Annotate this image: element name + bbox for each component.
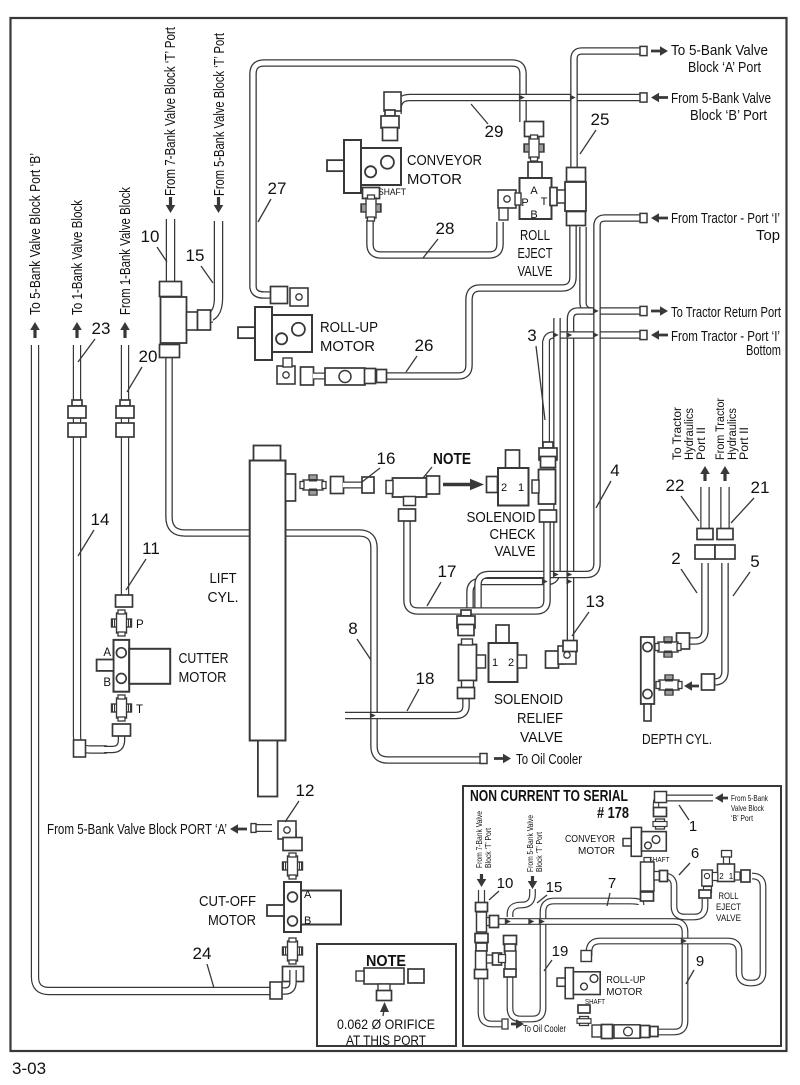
svg-text:NOTE: NOTE	[433, 451, 471, 468]
svg-text:17: 17	[438, 562, 457, 581]
svg-text:Block ‘T’ Port: Block ‘T’ Port	[534, 831, 544, 872]
svg-text:EJECT: EJECT	[518, 245, 553, 262]
svg-text:6: 6	[691, 845, 699, 862]
svg-text:From 5-Bank Valve: From 5-Bank Valve	[671, 91, 771, 107]
svg-text:SOLENOID: SOLENOID	[494, 691, 563, 708]
svg-text:4: 4	[610, 461, 619, 480]
svg-text:CUTTER: CUTTER	[179, 650, 229, 667]
svg-text:26: 26	[415, 336, 434, 355]
svg-text:From 1-Bank Valve Block: From 1-Bank Valve Block	[118, 186, 134, 315]
svg-text:29: 29	[485, 122, 504, 141]
svg-text:25: 25	[591, 110, 610, 129]
svg-text:2: 2	[508, 657, 514, 669]
svg-text:Port II: Port II	[696, 427, 708, 460]
svg-text:P: P	[521, 197, 528, 209]
svg-text:Port II: Port II	[739, 427, 751, 460]
svg-text:ROLL-UP: ROLL-UP	[606, 975, 645, 986]
svg-text:Block ‘A’ Port: Block ‘A’ Port	[688, 60, 761, 76]
svg-text:To 5-Bank Valve: To 5-Bank Valve	[671, 43, 768, 59]
svg-text:VALVE: VALVE	[518, 263, 553, 280]
svg-text:27: 27	[268, 179, 287, 198]
svg-text:2: 2	[719, 872, 724, 881]
svg-text:SOLENOID: SOLENOID	[467, 509, 536, 526]
svg-text:A: A	[530, 185, 538, 197]
svg-text:0.062 Ø ORIFICE: 0.062 Ø ORIFICE	[337, 1016, 435, 1032]
svg-text:1: 1	[729, 872, 734, 881]
svg-text:To Tractor Return Port: To Tractor Return Port	[671, 305, 781, 321]
svg-text:18: 18	[416, 669, 435, 688]
svg-text:MOTOR: MOTOR	[208, 912, 256, 929]
svg-text:5: 5	[750, 552, 759, 571]
svg-text:28: 28	[436, 219, 455, 238]
svg-text:VALVE: VALVE	[495, 543, 536, 560]
svg-text:B: B	[530, 209, 537, 221]
svg-text:To 5-Bank Valve Block Port ‘B’: To 5-Bank Valve Block Port ‘B’	[28, 153, 44, 315]
svg-text:2: 2	[501, 482, 507, 494]
svg-text:MOTOR: MOTOR	[407, 171, 462, 188]
svg-text:T: T	[541, 196, 548, 208]
svg-text:7: 7	[608, 875, 616, 892]
svg-text:MOTOR: MOTOR	[606, 987, 642, 998]
svg-text:Bottom: Bottom	[746, 343, 781, 359]
svg-text:P: P	[136, 619, 144, 631]
svg-text:ROLL-UP: ROLL-UP	[320, 319, 378, 336]
svg-text:RELIEF: RELIEF	[517, 710, 563, 727]
svg-text:VALVE: VALVE	[520, 729, 563, 746]
svg-text:13: 13	[586, 592, 605, 611]
svg-text:A: A	[304, 889, 312, 901]
svg-text:Hydraulics: Hydraulics	[727, 408, 739, 460]
svg-text:From 5-Bank: From 5-Bank	[731, 793, 769, 803]
svg-text:CYL.: CYL.	[208, 589, 239, 606]
svg-text:20: 20	[139, 347, 158, 366]
svg-text:23: 23	[92, 319, 111, 338]
svg-text:24: 24	[193, 944, 212, 963]
svg-text:A: A	[103, 647, 111, 659]
svg-text:21: 21	[751, 478, 770, 497]
svg-text:8: 8	[348, 619, 357, 638]
svg-text:# 178: # 178	[597, 805, 629, 822]
svg-text:T: T	[136, 704, 143, 716]
svg-text:3-03: 3-03	[12, 1059, 46, 1078]
svg-text:ROLL: ROLL	[520, 227, 550, 244]
svg-text:CONVEYOR: CONVEYOR	[407, 152, 482, 169]
svg-text:B: B	[304, 915, 311, 927]
svg-text:2: 2	[671, 549, 680, 568]
svg-text:Hydraulics: Hydraulics	[684, 408, 696, 460]
svg-text:To Oil Cooler: To Oil Cooler	[523, 1024, 566, 1035]
svg-text:19: 19	[552, 943, 569, 960]
svg-text:From 5-Bank Valve Block ‘T’ Po: From 5-Bank Valve Block ‘T’ Port	[212, 33, 228, 196]
svg-text:1: 1	[689, 818, 697, 835]
svg-text:1: 1	[492, 657, 498, 669]
svg-text:15: 15	[546, 879, 563, 896]
svg-text:14: 14	[91, 510, 110, 529]
svg-text:To Tractor: To Tractor	[672, 407, 684, 460]
svg-text:MOTOR: MOTOR	[320, 338, 375, 355]
svg-text:Top: Top	[756, 228, 780, 244]
svg-text:From Tractor - Port ‘I’: From Tractor - Port ‘I’	[671, 211, 780, 227]
svg-text:B: B	[103, 677, 111, 689]
svg-text:VALVE: VALVE	[716, 913, 741, 924]
svg-text:MOTOR: MOTOR	[179, 669, 227, 686]
svg-text:Block ‘T’ Port: Block ‘T’ Port	[483, 827, 493, 868]
svg-text:3: 3	[527, 326, 536, 345]
svg-text:10: 10	[497, 875, 514, 892]
svg-text:To 1-Bank Valve Block: To 1-Bank Valve Block	[70, 199, 86, 315]
svg-text:CUT-OFF: CUT-OFF	[199, 893, 256, 910]
svg-text:NON CURRENT TO SERIAL: NON CURRENT TO SERIAL	[470, 788, 628, 805]
svg-text:To Oil Cooler: To Oil Cooler	[516, 752, 582, 768]
svg-text:From Tractor: From Tractor	[715, 398, 727, 460]
svg-text:10: 10	[141, 227, 160, 246]
svg-text:From 7-Bank Valve Block ‘T’ Po: From 7-Bank Valve Block ‘T’ Port	[163, 27, 179, 196]
svg-text:LIFT: LIFT	[210, 570, 237, 587]
svg-text:‘B’ Port: ‘B’ Port	[731, 813, 754, 823]
svg-text:SHAFT: SHAFT	[378, 187, 406, 197]
svg-text:16: 16	[377, 449, 396, 468]
svg-text:9: 9	[696, 953, 704, 970]
svg-text:ROLL: ROLL	[719, 891, 739, 902]
svg-text:From 5-Bank Valve Block PORT ‘: From 5-Bank Valve Block PORT ‘A’	[47, 822, 227, 838]
svg-text:1: 1	[518, 482, 524, 494]
svg-text:12: 12	[296, 781, 315, 800]
svg-text:22: 22	[666, 476, 685, 495]
svg-text:CHECK: CHECK	[490, 526, 536, 543]
svg-text:15: 15	[186, 246, 205, 265]
svg-text:DEPTH CYL.: DEPTH CYL.	[642, 731, 712, 748]
svg-text:CONVEYOR: CONVEYOR	[565, 834, 615, 845]
svg-text:EJECT: EJECT	[716, 902, 741, 913]
svg-text:Valve Block: Valve Block	[731, 803, 765, 813]
svg-text:Block ‘B’ Port: Block ‘B’ Port	[690, 108, 767, 124]
svg-text:11: 11	[142, 539, 160, 558]
svg-text:AT THIS PORT: AT THIS PORT	[346, 1032, 426, 1048]
svg-text:MOTOR: MOTOR	[578, 846, 615, 857]
